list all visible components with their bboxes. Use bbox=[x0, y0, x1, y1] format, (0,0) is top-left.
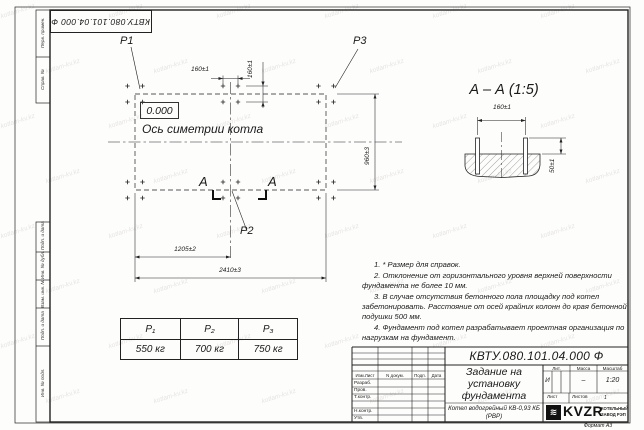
load-table-value-p2: 700 кг bbox=[180, 339, 239, 359]
load-table-value-p3: 750 кг bbox=[238, 339, 297, 359]
mass-header: Масса bbox=[570, 366, 597, 371]
rev-header-n-dokum: N докум. bbox=[378, 373, 412, 378]
load-table-value-p1: 550 кг bbox=[121, 339, 180, 359]
note-3: 3. В случае отсутствия бетонного пола пл… bbox=[362, 292, 634, 322]
load-table-header-p1: P₁ bbox=[121, 319, 180, 339]
anchor-bolt-left bbox=[476, 138, 480, 174]
title-block-product: Котел водогрейный КВ-0,93 КБ (РВР) bbox=[447, 405, 541, 421]
sidebar-label-podp-data-2: Подп. и дата bbox=[40, 311, 45, 340]
top-stamp-designation: КВТУ.080.101.04.000 Ф bbox=[51, 17, 150, 27]
level-mark: 0.000 bbox=[140, 102, 179, 119]
mass-value: – bbox=[570, 377, 597, 384]
sheets-value: 1 bbox=[604, 395, 607, 401]
note-2: 2. Отклонение от горизонтального уровня … bbox=[362, 271, 634, 291]
kvzr-logo-text: KVZR bbox=[563, 403, 603, 419]
dim-text-section-160: 160±1 bbox=[483, 104, 521, 111]
sheet-label: Лист bbox=[547, 395, 557, 400]
load-point-p3-label: P3 bbox=[353, 35, 366, 47]
leader-p3 bbox=[335, 49, 358, 88]
notes-block: 1. * Размер для справок. 2. Отклонение о… bbox=[362, 260, 634, 344]
section-letter-left: А bbox=[199, 174, 208, 189]
dim-text-2410: 2410±3 bbox=[195, 267, 265, 274]
lit-header: Лит. bbox=[543, 366, 570, 371]
load-table-header-p2: P₂ bbox=[180, 319, 239, 339]
section-title: А – А (1:5) bbox=[458, 82, 550, 98]
sheets-label: Листов bbox=[572, 395, 588, 400]
sidebar-label-sprav-n: Справ. № bbox=[40, 69, 45, 90]
dim-text-160-h: 160±1 bbox=[191, 66, 209, 73]
leader-p1 bbox=[131, 47, 140, 89]
anchor-bolt-right bbox=[524, 138, 528, 174]
dim-text-960: 960±3 bbox=[364, 147, 371, 165]
load-table: P₁ P₂ P₃ 550 кг 700 кг 750 кг bbox=[120, 318, 298, 360]
row-label-tkontr: Т.контр. bbox=[354, 395, 371, 400]
load-point-p2-label: P2 bbox=[240, 225, 253, 237]
rev-header-podp: Подп. bbox=[412, 373, 428, 378]
kvzr-logo-icon: ≋ bbox=[546, 405, 561, 420]
symmetry-axis-label: Ось симетрии котла bbox=[142, 122, 263, 136]
note-1: 1. * Размер для справок. bbox=[362, 260, 634, 270]
row-label-razrab: Разраб. bbox=[354, 381, 371, 386]
drawing-sheet: kotlam-kv.kzkotlam-kv.kzkotlam-kv.kzkotl… bbox=[0, 0, 644, 430]
scale-value: 1:20 bbox=[597, 377, 628, 384]
section-letter-right: А bbox=[268, 174, 277, 189]
top-stamp: КВТУ.080.101.04.000 Ф bbox=[50, 10, 152, 33]
title-block-doc-title: Задание на установку фундамента bbox=[447, 366, 541, 402]
sidebar-label-podp-data-1: Подп. и дата bbox=[40, 221, 45, 250]
dim-text-160-v: 160±1 bbox=[247, 60, 254, 78]
row-label-nkontr: Н.контр. bbox=[354, 409, 372, 414]
load-table-header-p3: P₃ bbox=[238, 319, 297, 339]
dim-section-height bbox=[529, 138, 566, 154]
sidebar-label-inv-podl: Инв. № подл. bbox=[40, 368, 45, 397]
rev-header-izm-list: Изм.Лист bbox=[352, 373, 378, 378]
lit-value: И bbox=[543, 377, 552, 384]
sidebar-label-perv-primen: Перв. примен. bbox=[40, 17, 45, 48]
sidebar-label-vzam-inv: Взам. инв. № bbox=[40, 280, 45, 308]
title-block-designation: КВТУ.080.101.04.000 Ф bbox=[447, 349, 626, 363]
row-label-utv: Утв. bbox=[354, 416, 363, 421]
load-point-p1-label: P1 bbox=[120, 35, 133, 47]
dim-text-section-50: 50±1 bbox=[549, 159, 556, 173]
dim-text-1205: 1205±2 bbox=[150, 246, 220, 253]
row-label-prov: Пров. bbox=[354, 388, 367, 393]
section-cut-marks bbox=[213, 190, 266, 200]
note-4: 4. Фундамент под котел разрабатывает про… bbox=[362, 323, 634, 343]
rev-header-data: Дата bbox=[428, 373, 445, 378]
scale-header: Масштаб bbox=[597, 366, 628, 371]
kvzr-logo-caption: КОТЕЛЬНЫЙ ЗАВОД РЭП bbox=[601, 406, 631, 418]
sidebar-label-inv-dubl: Инв. № дубл. bbox=[40, 251, 45, 279]
format-label: Формат А3 bbox=[566, 423, 630, 429]
